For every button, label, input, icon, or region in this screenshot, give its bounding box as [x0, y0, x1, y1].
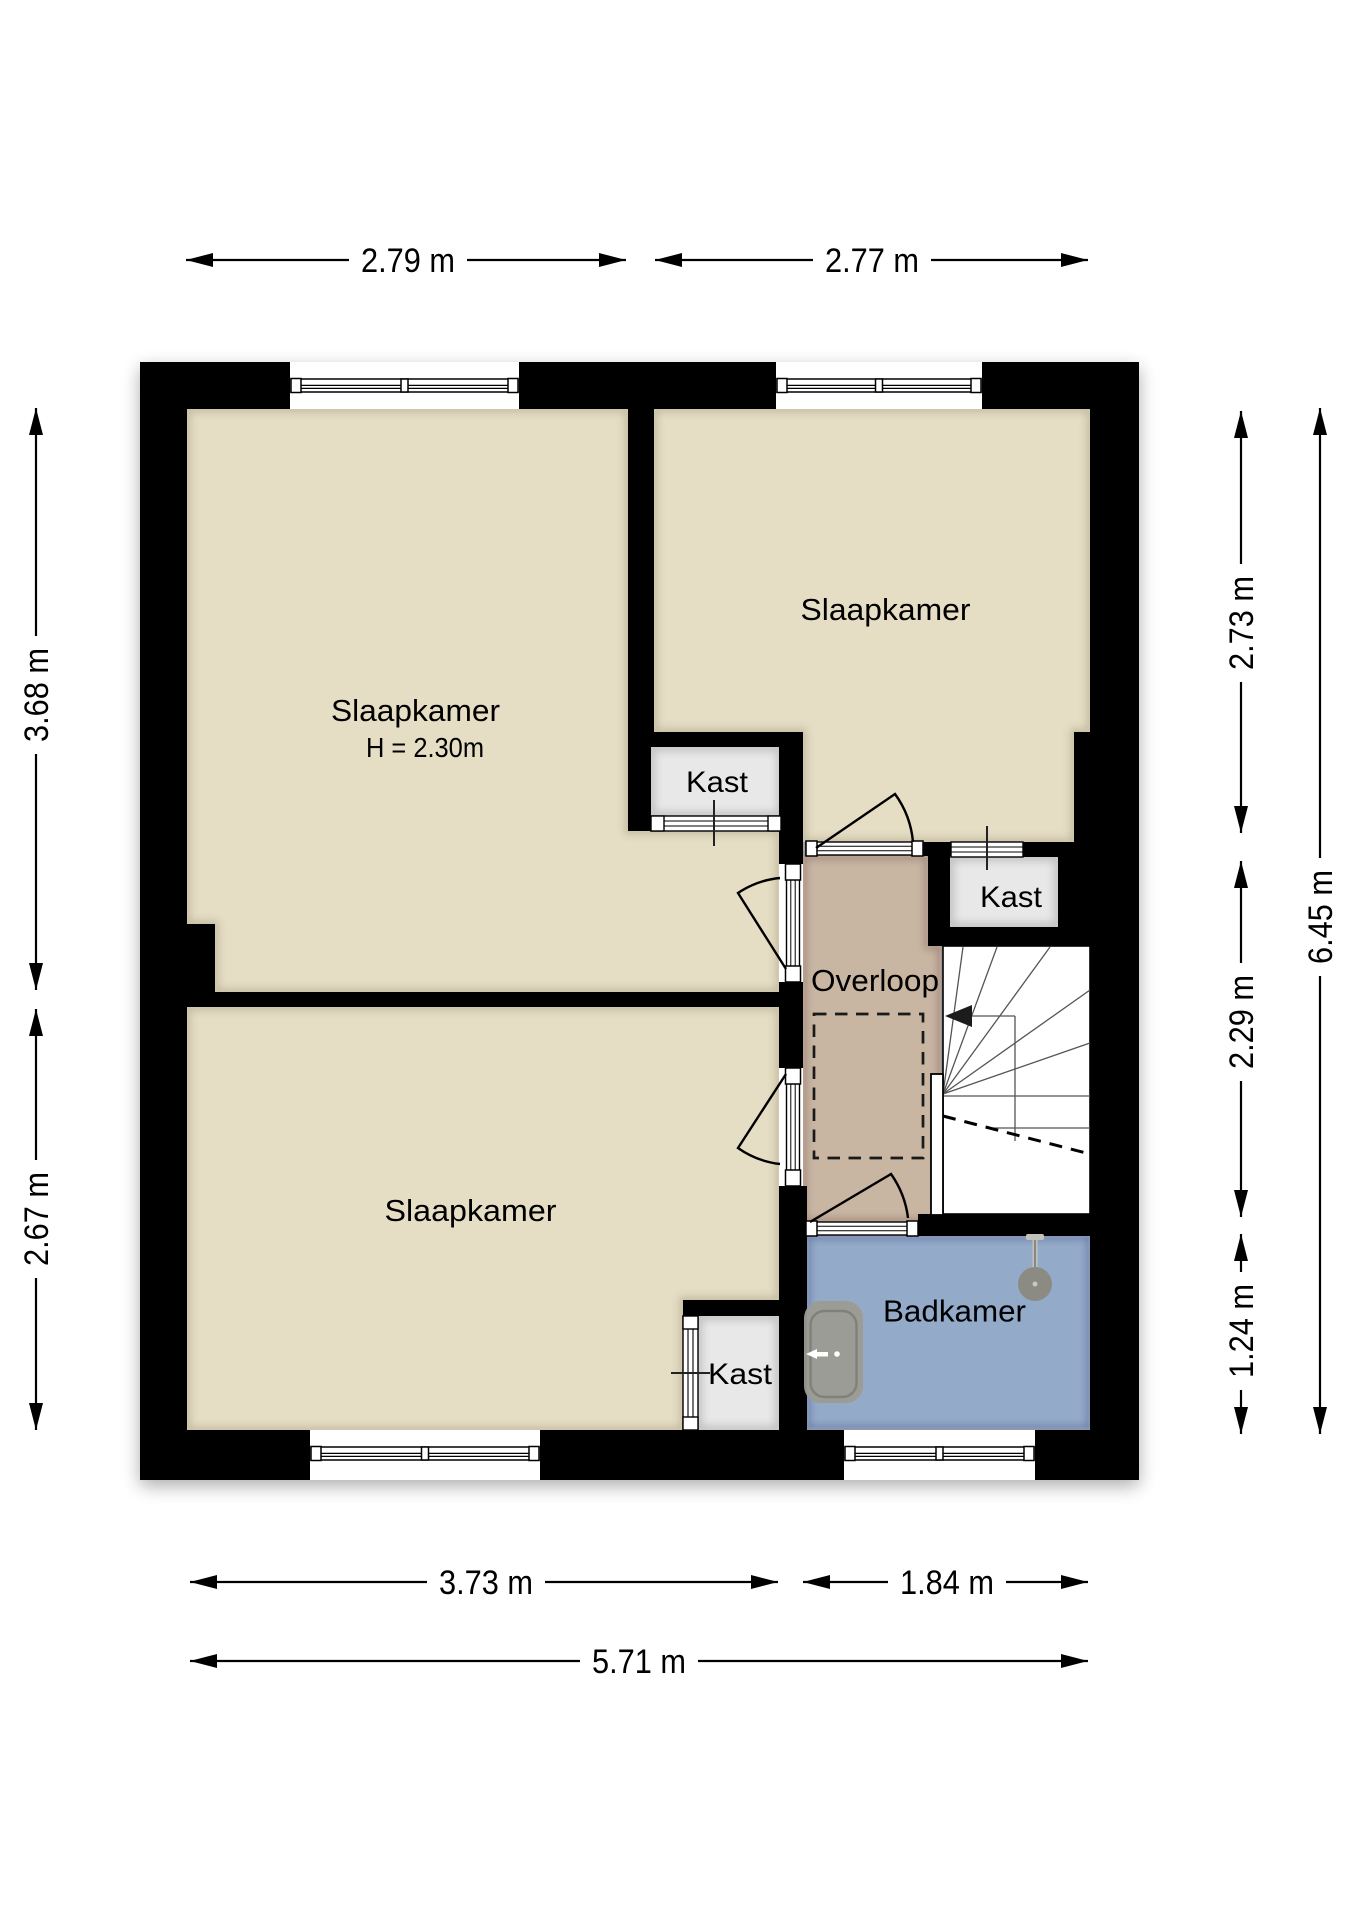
svg-text:1.84 m: 1.84 m: [900, 1564, 994, 1602]
svg-text:2.29 m: 2.29 m: [1223, 975, 1261, 1069]
svg-text:2.73 m: 2.73 m: [1223, 576, 1261, 670]
svg-text:2.77 m: 2.77 m: [825, 242, 919, 280]
svg-text:H = 2.30m: H = 2.30m: [366, 732, 484, 763]
svg-text:2.67 m: 2.67 m: [18, 1172, 56, 1266]
svg-text:6.45 m: 6.45 m: [1302, 870, 1340, 964]
svg-text:Kast: Kast: [980, 881, 1043, 914]
svg-text:Slaapkamer: Slaapkamer: [385, 1193, 557, 1228]
svg-text:Overloop: Overloop: [811, 963, 939, 998]
svg-text:Kast: Kast: [708, 1358, 773, 1391]
svg-text:Kast: Kast: [686, 766, 749, 799]
svg-text:2.79 m: 2.79 m: [361, 242, 455, 280]
svg-text:Slaapkamer: Slaapkamer: [801, 592, 971, 627]
svg-text:3.68 m: 3.68 m: [18, 648, 56, 742]
svg-text:3.73 m: 3.73 m: [439, 1564, 533, 1602]
svg-text:Badkamer: Badkamer: [883, 1294, 1026, 1329]
svg-text:5.71 m: 5.71 m: [592, 1643, 686, 1681]
svg-text:1.24 m: 1.24 m: [1223, 1284, 1261, 1378]
svg-text:Slaapkamer: Slaapkamer: [331, 693, 500, 728]
